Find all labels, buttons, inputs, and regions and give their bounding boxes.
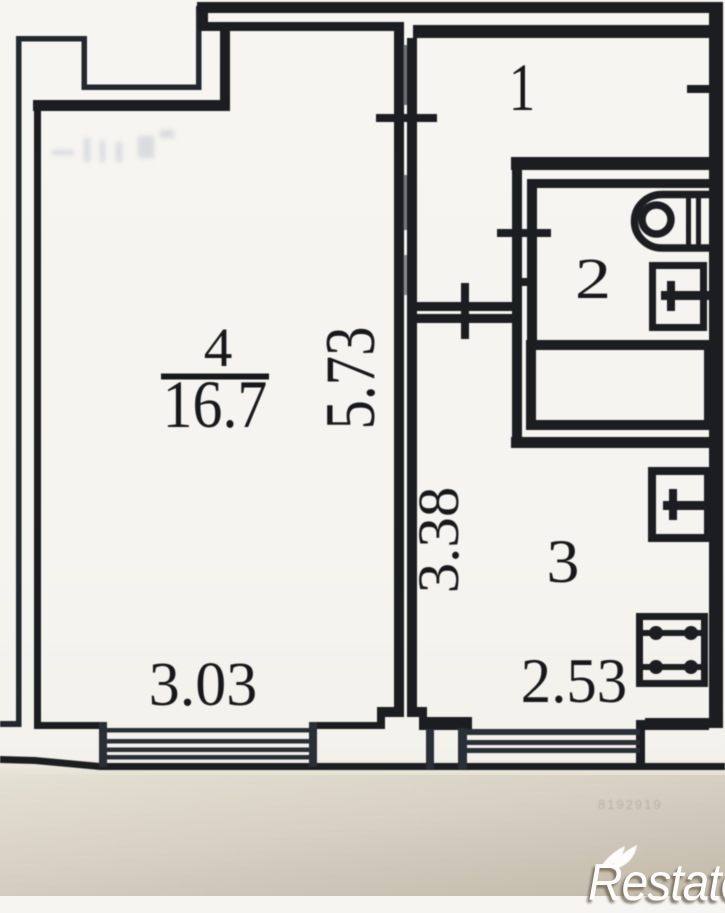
svg-text:3.38: 3.38 — [406, 487, 470, 594]
svg-text:5.73: 5.73 — [312, 326, 390, 429]
svg-text:3.03: 3.03 — [149, 651, 258, 719]
svg-text:1: 1 — [509, 51, 536, 126]
svg-text:2: 2 — [575, 247, 611, 311]
svg-text:3: 3 — [547, 527, 580, 595]
svg-text:2.53: 2.53 — [521, 645, 627, 717]
